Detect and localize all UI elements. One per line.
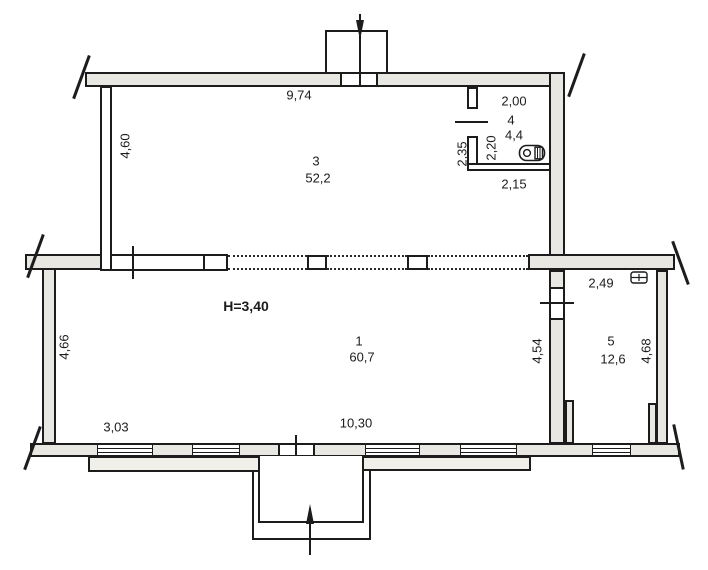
dotted-line-segment <box>327 255 407 257</box>
wall-room4-left-upper <box>467 87 478 109</box>
window <box>192 443 240 457</box>
partition-middle-left <box>100 254 228 271</box>
dotted-line-segment <box>228 255 307 257</box>
dim-room1-bottom: 10,30 <box>340 417 373 430</box>
dim-room4-bottom: 2,15 <box>501 178 526 191</box>
dim-room1-left: 4,66 <box>58 334 71 359</box>
porch-slab-right <box>348 456 531 471</box>
dim-room1-window: 3,03 <box>103 421 128 434</box>
window <box>365 443 420 457</box>
toilet-icon <box>518 144 546 162</box>
wall-room3-left <box>100 86 112 271</box>
exterior-wall-top <box>85 72 565 87</box>
partition-door-tick <box>132 246 134 279</box>
top-door-tick <box>359 74 361 85</box>
dim-room4-left-outer: 2,35 <box>456 141 469 166</box>
column <box>407 255 428 270</box>
room1-number: 1 <box>355 335 362 348</box>
wall-end-tick <box>567 53 585 97</box>
dotted-line-segment <box>327 268 407 270</box>
dim-room5-top: 2,49 <box>588 277 613 290</box>
entrance-arrow-down-icon <box>356 20 364 40</box>
window <box>460 443 517 457</box>
dotted-line-segment <box>428 255 528 257</box>
dotted-line-segment <box>228 268 307 270</box>
dim-room3-top: 9,74 <box>286 89 311 102</box>
exterior-wall-stub-left-middle <box>25 254 103 270</box>
room3-number: 3 <box>312 155 319 168</box>
dim-room1-right: 4,54 <box>531 338 544 363</box>
room4-door-tick <box>455 121 488 123</box>
ceiling-height-note: H=3,40 <box>223 299 269 313</box>
exterior-wall-room5-right <box>656 270 668 444</box>
dim-room3-left: 4,60 <box>119 133 132 158</box>
room4-area: 4,4 <box>505 129 523 142</box>
column <box>307 255 327 270</box>
dim-room5-right: 4,68 <box>640 338 653 363</box>
room5-door-tick <box>540 302 574 304</box>
wall-middle-right <box>528 254 675 270</box>
window <box>592 443 631 457</box>
wall-room4-bottom <box>467 163 551 171</box>
room1-area: 60,7 <box>349 351 374 364</box>
floor-plan: 9,74 4,60 3 52,2 2,00 4 4,4 2,20 2,35 2,… <box>0 0 708 570</box>
exterior-wall-left-lower <box>42 268 56 444</box>
dim-room4-left-inner: 2,20 <box>485 135 498 160</box>
dim-room4-top: 2,00 <box>501 95 526 108</box>
sink-icon <box>630 271 648 284</box>
wall-room5-left-pilaster <box>565 400 574 444</box>
exterior-wall-right-upper <box>549 72 565 270</box>
partition-joint-line <box>203 255 205 270</box>
entrance-arrow-up-icon <box>306 504 314 524</box>
window <box>97 443 153 457</box>
room4-number: 4 <box>507 114 514 127</box>
wall-room5-right-pilaster <box>648 403 657 444</box>
dotted-line-segment <box>428 268 528 270</box>
room5-area: 12,6 <box>600 353 625 366</box>
room3-area: 52,2 <box>305 172 330 185</box>
porch-slab-left <box>88 456 265 472</box>
room5-number: 5 <box>607 335 614 348</box>
